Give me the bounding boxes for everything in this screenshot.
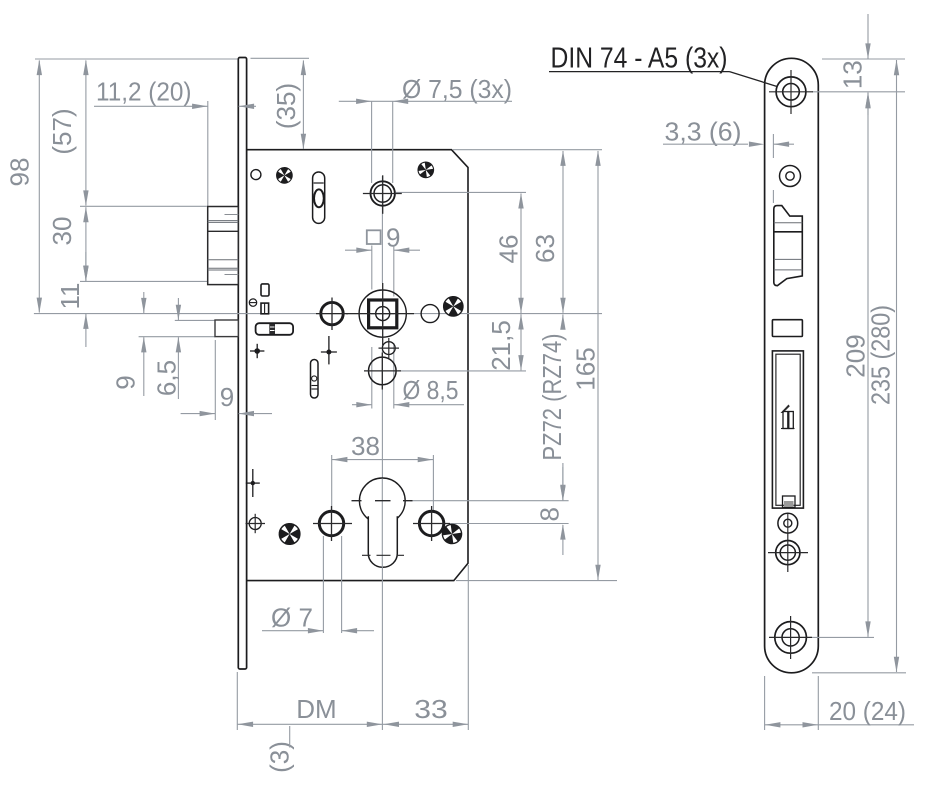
svg-text:Ø 8,5: Ø 8,5 (403, 375, 459, 405)
svg-text:235 (280): 235 (280) (866, 305, 896, 405)
svg-text:9: 9 (111, 375, 141, 389)
svg-text:13: 13 (838, 60, 868, 89)
svg-text:20 (24): 20 (24) (829, 696, 906, 726)
svg-text:30: 30 (47, 217, 77, 246)
svg-text:165: 165 (571, 347, 601, 390)
svg-text:Ø 7,5 (3x): Ø 7,5 (3x) (402, 74, 512, 104)
svg-text:(35): (35) (271, 83, 301, 129)
svg-text:DM: DM (296, 694, 336, 724)
svg-text:11: 11 (55, 283, 85, 310)
svg-text:8: 8 (535, 507, 565, 521)
svg-text:Ø 7: Ø 7 (271, 603, 313, 633)
svg-text:11,2 (20): 11,2 (20) (96, 77, 192, 107)
svg-text:3,3 (6): 3,3 (6) (665, 117, 742, 147)
svg-text:(57): (57) (47, 108, 77, 154)
svg-text:98: 98 (5, 158, 35, 187)
svg-text:46: 46 (494, 235, 524, 264)
svg-text:9: 9 (386, 223, 400, 253)
svg-text:33: 33 (414, 694, 448, 724)
svg-text:DIN 74 - A5 (3x): DIN 74 - A5 (3x) (551, 43, 728, 75)
svg-text:63: 63 (530, 234, 560, 263)
svg-text:9: 9 (220, 382, 234, 412)
svg-text:PZ72 (RZ74): PZ72 (RZ74) (537, 334, 567, 461)
svg-text:21,5: 21,5 (486, 320, 516, 371)
svg-text:38: 38 (351, 431, 380, 461)
svg-text:6,5: 6,5 (152, 360, 182, 396)
